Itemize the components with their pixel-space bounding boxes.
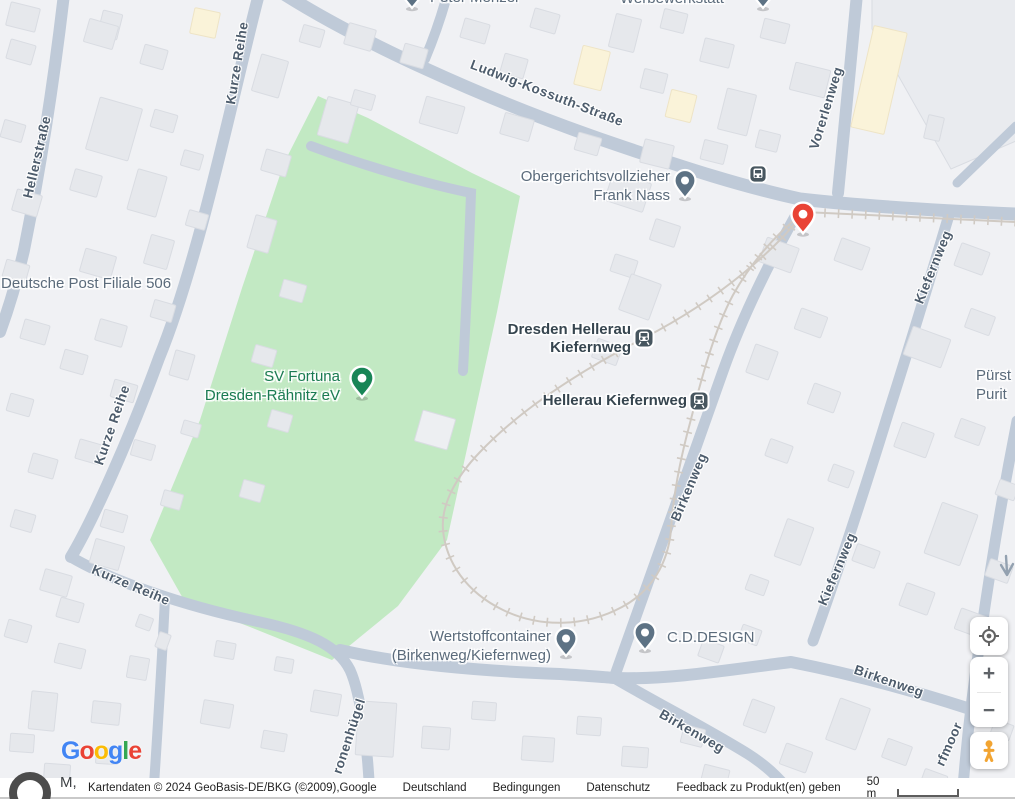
building: [56, 597, 85, 623]
building: [85, 97, 142, 161]
building: [881, 738, 912, 766]
building: [143, 234, 174, 269]
building: [355, 701, 397, 758]
google-logo-letter: o: [94, 737, 108, 765]
map-data-attribution: Kartendaten © 2024 GeoBasis-DE/BKG (©200…: [88, 782, 377, 794]
building: [899, 583, 935, 616]
building: [618, 274, 661, 321]
pegman-button[interactable]: [970, 732, 1008, 769]
building: [130, 439, 156, 460]
google-logo-letter: o: [79, 737, 93, 765]
pegman-icon: [978, 739, 1000, 763]
building: [500, 53, 529, 79]
building: [4, 619, 32, 643]
building: [79, 248, 116, 280]
building: [260, 149, 291, 177]
building: [95, 319, 128, 348]
bus-stop-icon[interactable]: [750, 166, 767, 183]
attribution-country[interactable]: Deutschland: [403, 782, 467, 794]
building: [779, 743, 813, 773]
building: [421, 726, 450, 750]
building: [261, 730, 288, 752]
building: [700, 38, 735, 69]
building: [70, 169, 103, 198]
zoom-divider: [977, 692, 1001, 693]
scale-bar: [897, 789, 960, 797]
map-scale: 50 m: [867, 776, 960, 799]
building: [0, 119, 26, 142]
building: [140, 44, 169, 70]
building: [91, 701, 121, 726]
building: [834, 238, 870, 271]
privacy-link[interactable]: Datenschutz: [586, 782, 650, 794]
building: [954, 418, 985, 446]
building: [924, 502, 978, 566]
building: [530, 8, 561, 34]
building: [54, 643, 86, 669]
building: [28, 691, 58, 732]
building: [774, 518, 814, 565]
building: [100, 509, 128, 533]
my-location-icon: [978, 625, 1000, 647]
google-logo[interactable]: Google: [61, 737, 141, 766]
road-bottom-left-stub: [153, 598, 165, 799]
building: [825, 698, 870, 750]
building-yellow: [665, 89, 697, 122]
building: [964, 308, 995, 336]
building: [40, 569, 73, 598]
building: [310, 690, 341, 717]
building: [743, 699, 775, 734]
building: [852, 543, 881, 568]
terms-link[interactable]: Bedingungen: [493, 782, 561, 794]
poi-pin-cd-design[interactable]: [635, 622, 656, 653]
building: [717, 88, 756, 136]
building: [214, 640, 236, 659]
building-yellow: [851, 26, 908, 135]
zoom-out-button[interactable]: −: [970, 694, 1008, 727]
building: [698, 639, 725, 663]
building: [75, 439, 106, 465]
building: [169, 350, 195, 381]
building: [700, 139, 728, 164]
building: [200, 700, 234, 729]
google-logo-letter: G: [61, 737, 79, 765]
building: [521, 736, 555, 762]
poi-pin-werbewerkstatt[interactable]: [753, 0, 774, 11]
google-logo-letter: g: [108, 737, 122, 765]
building: [738, 624, 762, 646]
building: [745, 574, 769, 596]
zoom-in-button[interactable]: +: [970, 657, 1008, 690]
building: [180, 420, 201, 438]
building: [789, 62, 831, 98]
building: [28, 453, 59, 479]
building: [954, 243, 990, 276]
park-sports-ground: [150, 96, 520, 660]
building-yellow: [574, 45, 611, 91]
station-icon-hellerau-kiefernweg[interactable]: [690, 392, 709, 411]
building: [344, 23, 377, 52]
building: [6, 393, 34, 417]
building: [274, 657, 294, 674]
building: [251, 54, 288, 98]
building: [621, 746, 648, 768]
building: [640, 139, 675, 170]
building: [604, 172, 651, 213]
building: [135, 614, 154, 631]
building: [127, 169, 167, 218]
google-maps-viewport: HellerstraßeKurze ReiheKurze ReiheKurze …: [0, 0, 1015, 799]
poi-pin-wertstoffcontainer[interactable]: [556, 628, 577, 659]
building: [640, 68, 668, 93]
building: [110, 379, 138, 403]
building: [471, 701, 496, 721]
building: [576, 716, 601, 736]
red-destination-marker[interactable]: [791, 203, 814, 237]
building: [60, 349, 89, 375]
building: [660, 8, 688, 33]
building: [419, 96, 465, 134]
feedback-link[interactable]: Feedback zu Produkt(en) geben: [676, 782, 840, 794]
building-yellow: [190, 8, 221, 39]
building: [6, 39, 37, 65]
building: [807, 383, 841, 413]
building: [299, 24, 325, 47]
road-vorerlenweg: [838, 0, 857, 193]
building: [150, 109, 178, 133]
building: [10, 509, 36, 532]
zoom-control: + −: [970, 657, 1008, 727]
my-location-button[interactable]: [970, 617, 1008, 655]
building: [894, 422, 935, 458]
building: [155, 631, 172, 650]
building: [20, 319, 51, 345]
building: [9, 733, 34, 753]
station-icon-dresden-hellerau-kiefernweg[interactable]: [635, 329, 654, 348]
building: [828, 464, 855, 488]
google-logo-letter: e: [128, 737, 141, 765]
attribution-bar: Kartendaten © 2024 GeoBasis-DE/BKG (©200…: [0, 778, 1015, 799]
building: [608, 13, 641, 52]
building: [6, 2, 41, 33]
poi-pin-peter-menzel[interactable]: [402, 0, 423, 11]
building: [180, 150, 204, 171]
building: [765, 438, 794, 463]
road-kiefernweg: [813, 215, 949, 641]
cutoff-text: M,: [60, 774, 77, 791]
building: [126, 655, 150, 680]
building: [649, 219, 681, 248]
building: [760, 18, 790, 44]
building: [746, 344, 779, 380]
building: [755, 130, 781, 153]
building: [150, 299, 176, 322]
poi-pin-obergerichtsvollzieher[interactable]: [675, 170, 696, 201]
building: [460, 18, 491, 44]
building: [794, 308, 828, 338]
map-canvas[interactable]: [0, 0, 1015, 799]
scale-text: 50 m: [867, 776, 889, 799]
